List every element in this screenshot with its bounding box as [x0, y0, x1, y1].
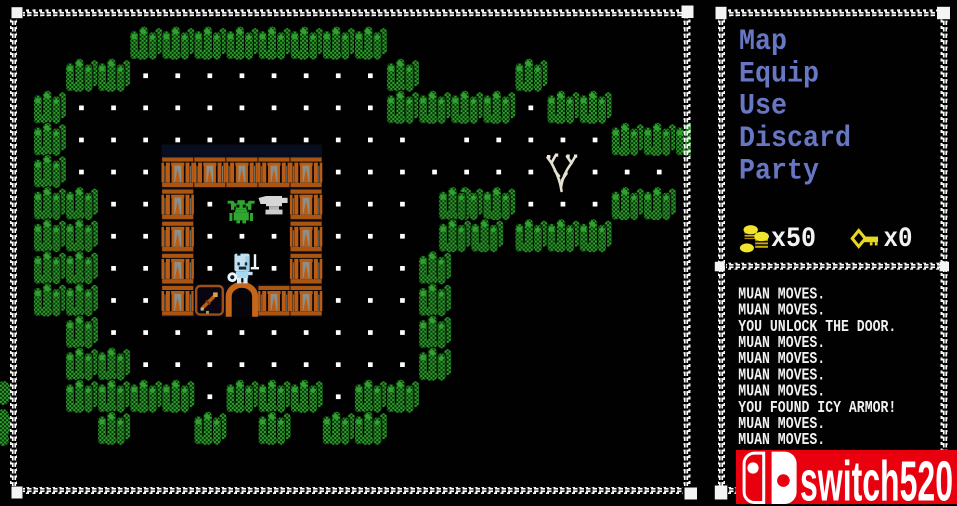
- svg-text:x50: x50: [771, 224, 816, 255]
- svg-text:MUAN MOVES.: MUAN MOVES.: [738, 430, 825, 449]
- svg-text:x0: x0: [884, 224, 913, 255]
- svg-text:Equip: Equip: [739, 57, 819, 91]
- svg-text:Use: Use: [739, 90, 787, 124]
- svg-text:Party: Party: [739, 155, 819, 189]
- svg-text:switch520: switch520: [800, 450, 953, 506]
- svg-text:Map: Map: [739, 25, 787, 59]
- svg-text:Discard: Discard: [739, 122, 851, 156]
